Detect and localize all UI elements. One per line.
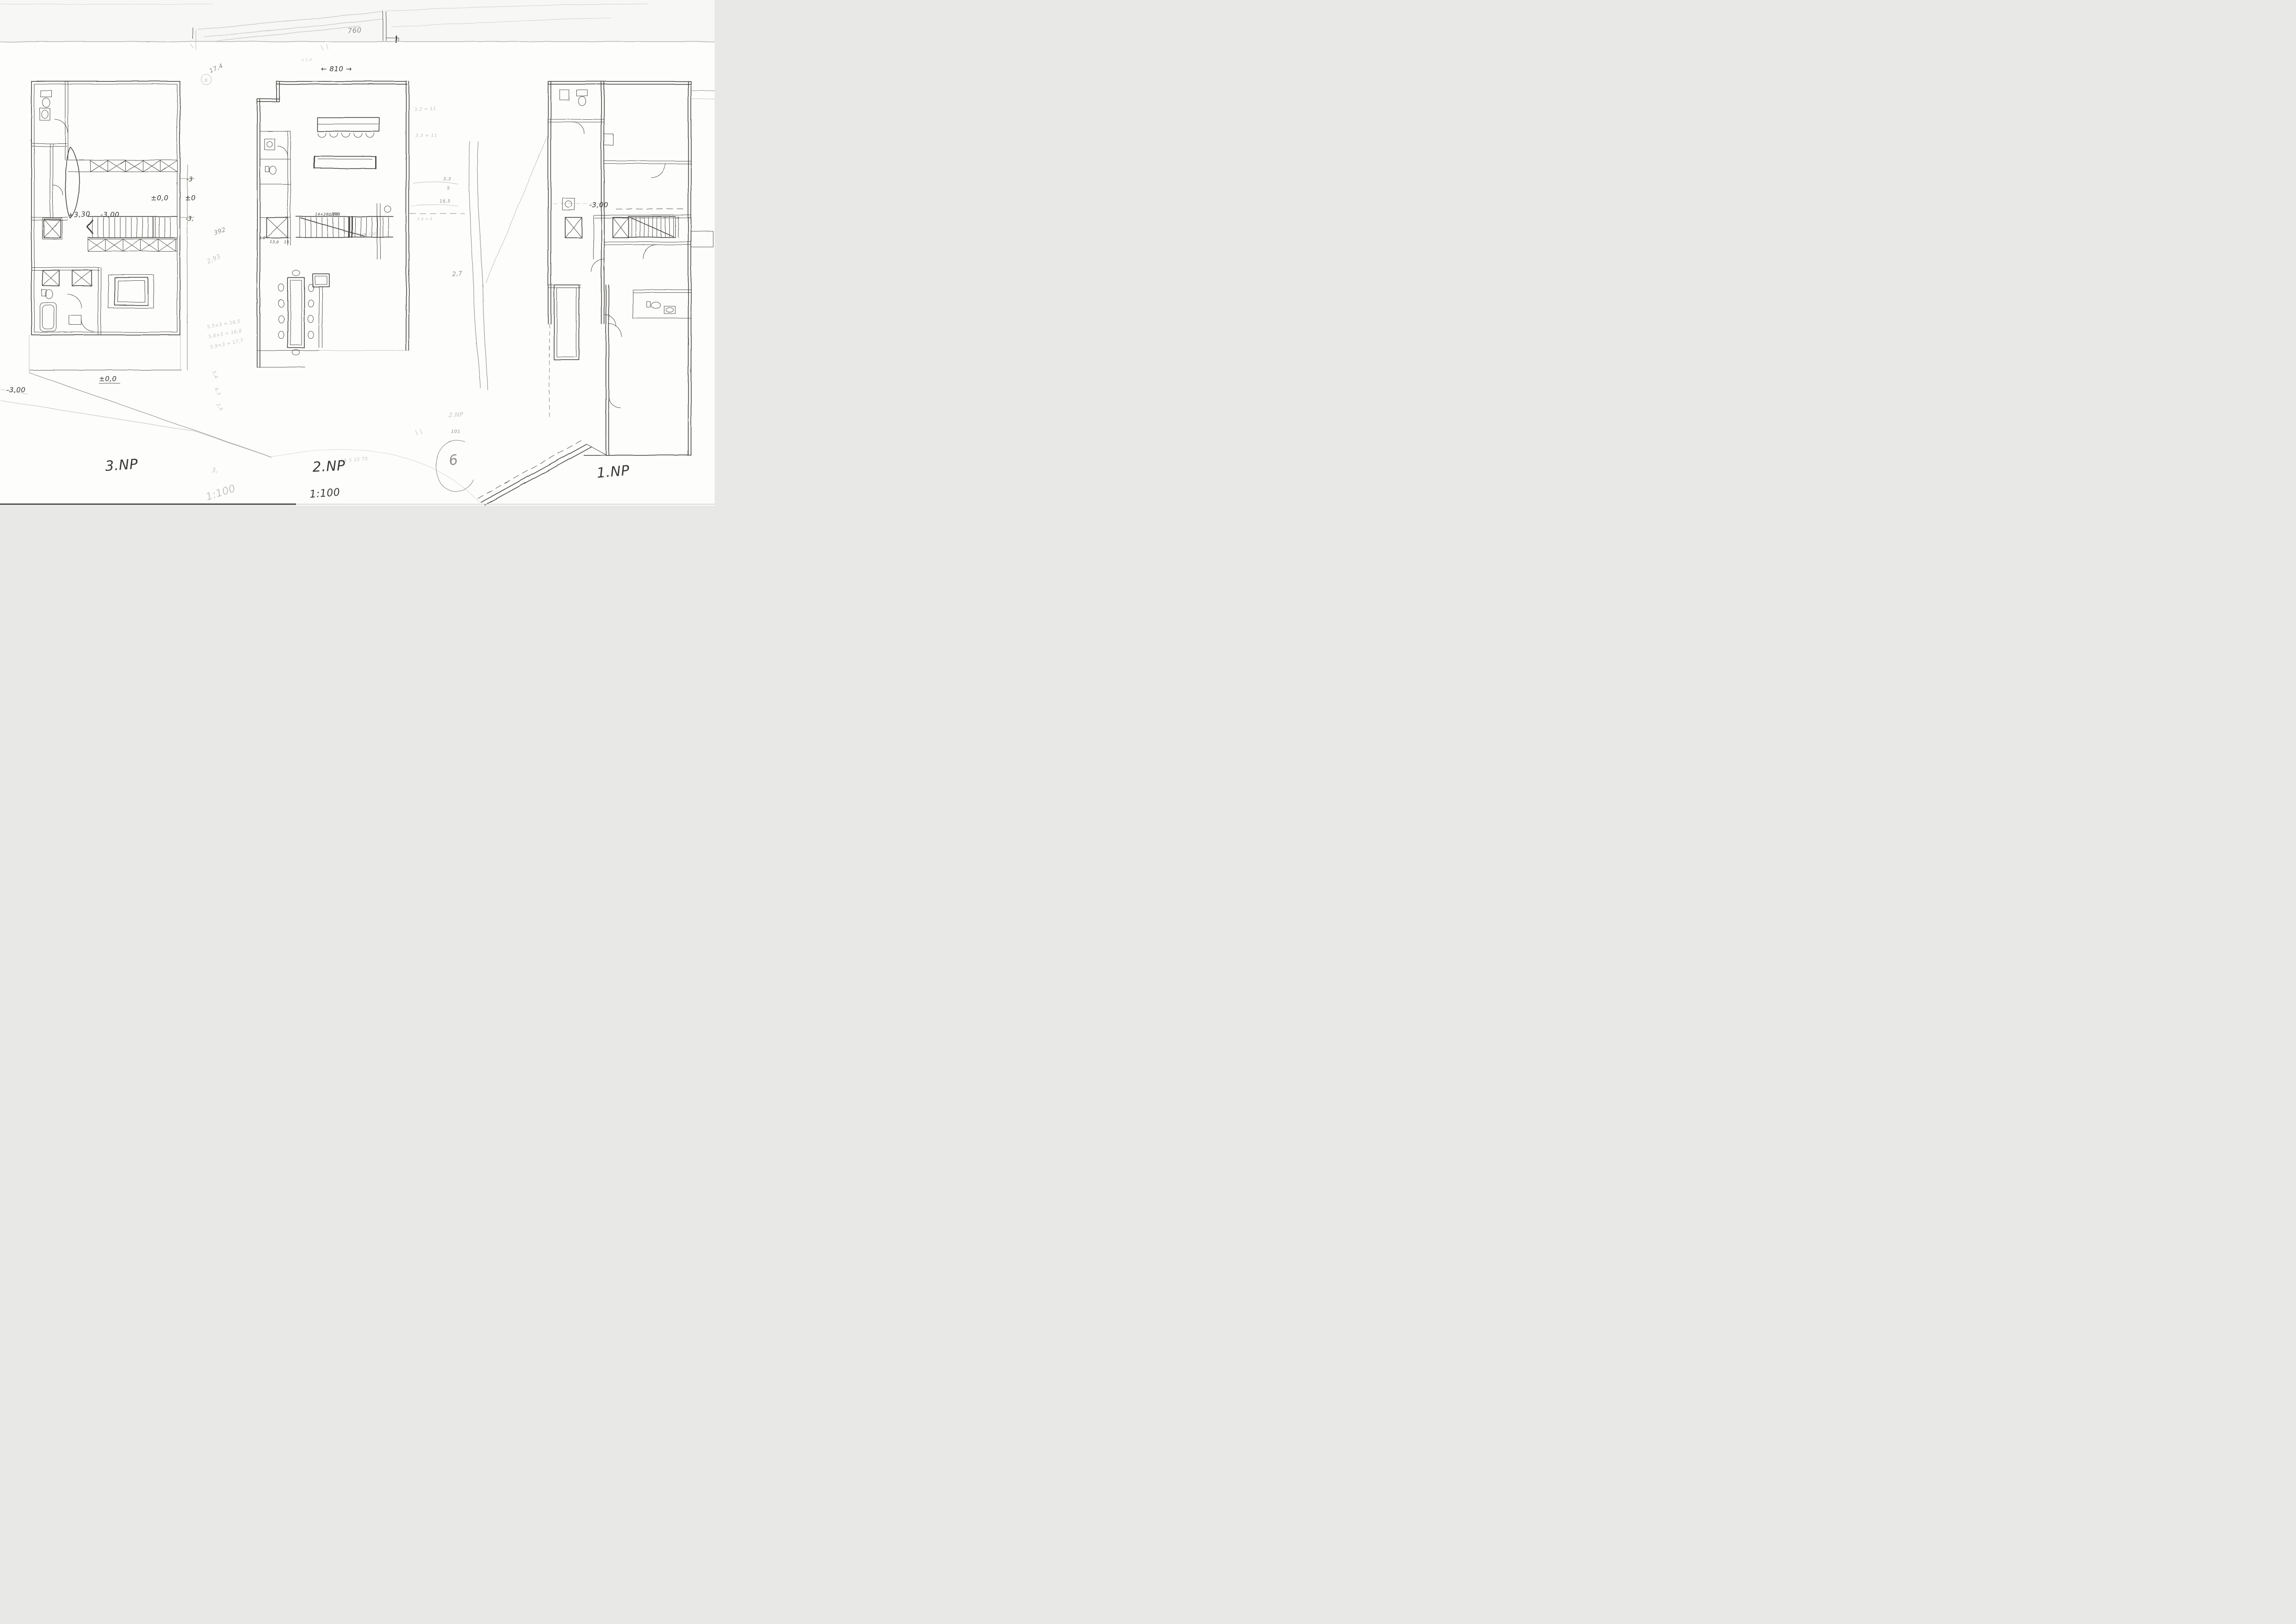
kitchen-counter [317, 117, 379, 137]
sink [265, 139, 275, 150]
plan-3np-drawing [1, 81, 271, 457]
shaft-cross-1 [565, 217, 582, 238]
plan-1np-drawing [271, 81, 715, 505]
outer-wall [31, 81, 180, 335]
bed-outline [115, 278, 148, 305]
underline-waves [412, 182, 458, 206]
toilet-tank [647, 302, 650, 307]
site-boundary-diagonal [481, 444, 591, 505]
chair [308, 331, 314, 339]
stair-rails [88, 216, 177, 238]
plan-title-3np: 3.NP [105, 456, 139, 475]
ground-level-label: ±0,0 [99, 375, 117, 383]
bed-inner [118, 281, 145, 302]
cistern [576, 90, 587, 96]
door-arc-upper [651, 164, 665, 178]
toilet-tank [265, 167, 269, 172]
table [288, 278, 304, 348]
stair-cut-line [301, 218, 364, 236]
stair-1np [628, 216, 678, 237]
toilet [651, 302, 660, 309]
toilet [270, 166, 276, 174]
toilet-bowl [43, 98, 50, 107]
wall-extensions [29, 335, 180, 373]
elevation-label: -3,00 [100, 210, 119, 219]
dim-label: 13,0 [270, 240, 279, 244]
plan-title-1np: 1.NP [596, 463, 630, 482]
corner-closure [586, 444, 607, 455]
stair-run-note: 392 [213, 226, 227, 236]
brace-band2-bracing [88, 239, 176, 251]
chair [308, 300, 314, 307]
closet-door-arc [53, 185, 63, 195]
wall-lower-left [548, 285, 581, 288]
chair [278, 300, 284, 307]
area-note: 17,4 [208, 62, 224, 75]
vertical-note: 6,3 [213, 387, 221, 396]
wc-suite-fixtures [560, 90, 587, 134]
contour-line-2 [477, 142, 488, 389]
island-counter [315, 156, 376, 168]
door-arc [573, 122, 585, 134]
chair [278, 284, 284, 291]
stair-direction-arrow [87, 221, 93, 234]
island [315, 156, 376, 168]
sink-basin [267, 142, 272, 147]
vertical-note: 2,6 [215, 402, 223, 412]
elevation-label: +3,30 [68, 210, 90, 219]
scale-label-center: 1:100 [309, 487, 340, 500]
duct-box [604, 134, 613, 145]
column-circle [384, 206, 391, 212]
planter-inner [557, 288, 576, 357]
truss-band-posts [90, 160, 160, 172]
contour-line-1 [469, 142, 480, 388]
truss-band-bracing [90, 161, 177, 172]
lower-door-arcs [609, 324, 622, 408]
hatch-box-2-cross [72, 270, 92, 286]
room-wall-mid [604, 242, 691, 245]
calc-note: 2,4 ≈ 8 [417, 217, 432, 221]
stair-landing [349, 216, 352, 237]
curved-partition [66, 147, 80, 218]
door-arc [278, 146, 288, 156]
column-note: 3,3 [443, 177, 451, 182]
scanned-sheet: 760 ← 810 → x 1,0 17,4 B -3 ±0 -3, ±0,0 … [0, 0, 715, 506]
chair [278, 315, 284, 323]
partition-vertical [65, 81, 68, 160]
shaft-cross [266, 217, 288, 238]
dim-label: 5,0 [259, 236, 265, 240]
site-level-label: -3,00 [6, 386, 25, 394]
room-wall-upper [604, 161, 691, 164]
hatch-boxes-3np [43, 270, 92, 286]
outer-wall-left-step [257, 81, 279, 367]
vertical-note: 5,4 [211, 370, 218, 379]
floor-plan-sketch-canvas: 760 ← 810 → x 1,0 17,4 B -3 ±0 -3, ±0,0 … [0, 0, 715, 506]
stair-run-label: 392 [332, 212, 339, 216]
elevation-label: -3 [186, 176, 193, 183]
faint-floor-note: 2.NP [448, 411, 463, 419]
width-dimension-label: ← 810 → [321, 65, 352, 73]
terrain-line-2 [1, 389, 271, 457]
dim-label: 15 [284, 240, 289, 244]
stair-end-wall [675, 216, 678, 237]
terrain-connector [271, 450, 479, 502]
lower-spine-wall [606, 285, 609, 455]
bathroom-walls [633, 290, 691, 318]
column-note: 16,5 [439, 199, 451, 204]
door-arcs [68, 294, 93, 331]
sketch-linework [0, 4, 715, 505]
service-column-2np [260, 131, 290, 245]
tiny-ticks [321, 44, 328, 50]
chair [278, 331, 284, 339]
annotation-texts: 760 ← 810 → x 1,0 17,4 B -3 ±0 -3, ±0,0 … [6, 26, 630, 503]
terrain-line-1 [30, 373, 271, 457]
stair-cut-line [630, 217, 673, 236]
sink-basin [666, 308, 673, 312]
bottom-edge-lines [257, 351, 319, 367]
stair-width-label: 180 [369, 232, 376, 236]
faint-number-note: 101 [451, 429, 461, 434]
room-furniture [108, 275, 154, 308]
shaft-cross-2 [613, 217, 629, 238]
cistern [41, 91, 52, 97]
tiny-marks [415, 429, 422, 435]
washbasin [69, 315, 81, 325]
toilet [578, 96, 586, 105]
elevation-label: -3, [185, 216, 194, 222]
elevation-label: ±0 [185, 194, 196, 202]
chair [308, 315, 314, 323]
island-caps [315, 156, 376, 168]
scale-prefix-faint: 3, [212, 467, 218, 474]
counter [317, 117, 379, 131]
landing-label: 50 [361, 233, 366, 238]
bathroom-1np [633, 290, 691, 318]
outer-wall-top-right [277, 81, 409, 351]
brace-band2-rails [88, 239, 177, 251]
corridor-door-arcs [591, 259, 616, 327]
sink-box [562, 198, 574, 210]
sink-basin [565, 201, 572, 207]
sink [560, 90, 569, 100]
top-dimension-label: 760 [347, 26, 362, 35]
bathtub-inner [42, 305, 54, 329]
scale-label-left: 1:100 [204, 483, 237, 503]
circled-note: B [204, 78, 208, 83]
wc-fixtures [40, 91, 68, 132]
stair-2np [296, 216, 393, 237]
hatch-box-1-cross [43, 270, 59, 286]
closet-column-walls [31, 143, 68, 220]
outer-wall-inner-line [34, 84, 177, 332]
outer-walls [548, 81, 691, 455]
bar-stools [318, 133, 374, 137]
door-arc-mid [643, 245, 657, 259]
stair-treads [93, 217, 170, 237]
dining-area [278, 270, 314, 355]
table-inner [290, 280, 302, 345]
door-swing-arc [55, 119, 68, 132]
room-dim-note: 2,7 [452, 270, 463, 278]
dining-wall [319, 287, 322, 348]
stair-3np [87, 216, 177, 238]
pantry-inner [315, 276, 327, 284]
hill-line [486, 135, 548, 283]
calc-note: 5,5×3 = 16,5 [207, 319, 241, 330]
shaft-3np [43, 218, 62, 239]
shaft-cross [44, 219, 61, 238]
balcony-stub [691, 231, 713, 247]
site-boundary-dashed [478, 440, 581, 499]
plan-2np-drawing [257, 81, 464, 367]
bathroom-fixtures [40, 185, 93, 331]
elevation-label: -3,00 [589, 201, 608, 209]
elevation-label: ±0,0 [151, 194, 168, 202]
chair [292, 270, 300, 276]
calc-note: 5,9×3 = 17,7 [210, 338, 244, 350]
wc-suite-wall [548, 119, 604, 122]
stair-rise-note: 2,93 [206, 253, 222, 266]
circled-number: 6 [448, 452, 459, 469]
calc-note: 5,6×3 = 16,8 [208, 328, 242, 340]
top-scan-strip [0, 0, 715, 42]
small-scribble: x 1,0 [301, 58, 312, 62]
wc-room-wall [31, 143, 67, 146]
column-note: 5 [447, 186, 450, 191]
stair-landing [153, 216, 155, 238]
planter-box [554, 285, 579, 360]
sink-basin [42, 110, 48, 118]
ratio-note: 3,3 ≈ 11 [415, 133, 437, 138]
ratio-note: 3,2 ≈ 11 [414, 106, 437, 112]
